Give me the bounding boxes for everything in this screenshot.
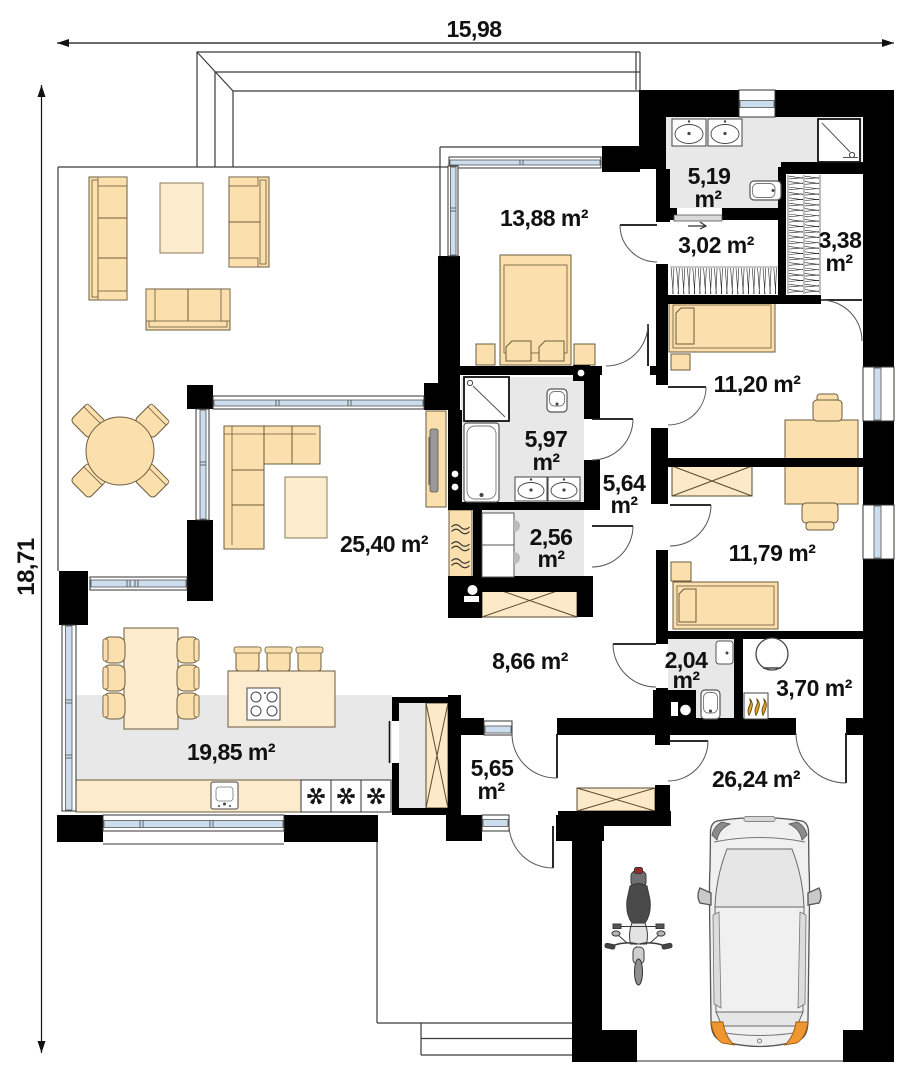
svg-text:m²: m² xyxy=(610,492,638,518)
svg-text:m²: m² xyxy=(537,546,565,572)
svg-text:8,66 m²: 8,66 m² xyxy=(492,648,569,674)
svg-text:13,88 m²: 13,88 m² xyxy=(500,205,589,231)
svg-text:m²: m² xyxy=(672,667,700,693)
svg-text:11,20 m²: 11,20 m² xyxy=(714,371,802,397)
svg-text:18,71: 18,71 xyxy=(13,538,40,596)
svg-text:15,98: 15,98 xyxy=(446,16,502,42)
svg-text:m²: m² xyxy=(825,250,853,276)
svg-text:3,02 m²: 3,02 m² xyxy=(678,232,755,258)
svg-text:m²: m² xyxy=(532,449,560,475)
svg-text:19,85 m²: 19,85 m² xyxy=(187,739,276,765)
svg-text:26,24 m²: 26,24 m² xyxy=(712,766,801,792)
svg-text:m²: m² xyxy=(477,778,505,804)
svg-text:m²: m² xyxy=(694,186,722,212)
svg-text:11,79 m²: 11,79 m² xyxy=(729,540,817,566)
svg-text:25,40 m²: 25,40 m² xyxy=(340,531,429,557)
svg-text:3,70 m²: 3,70 m² xyxy=(776,675,853,701)
